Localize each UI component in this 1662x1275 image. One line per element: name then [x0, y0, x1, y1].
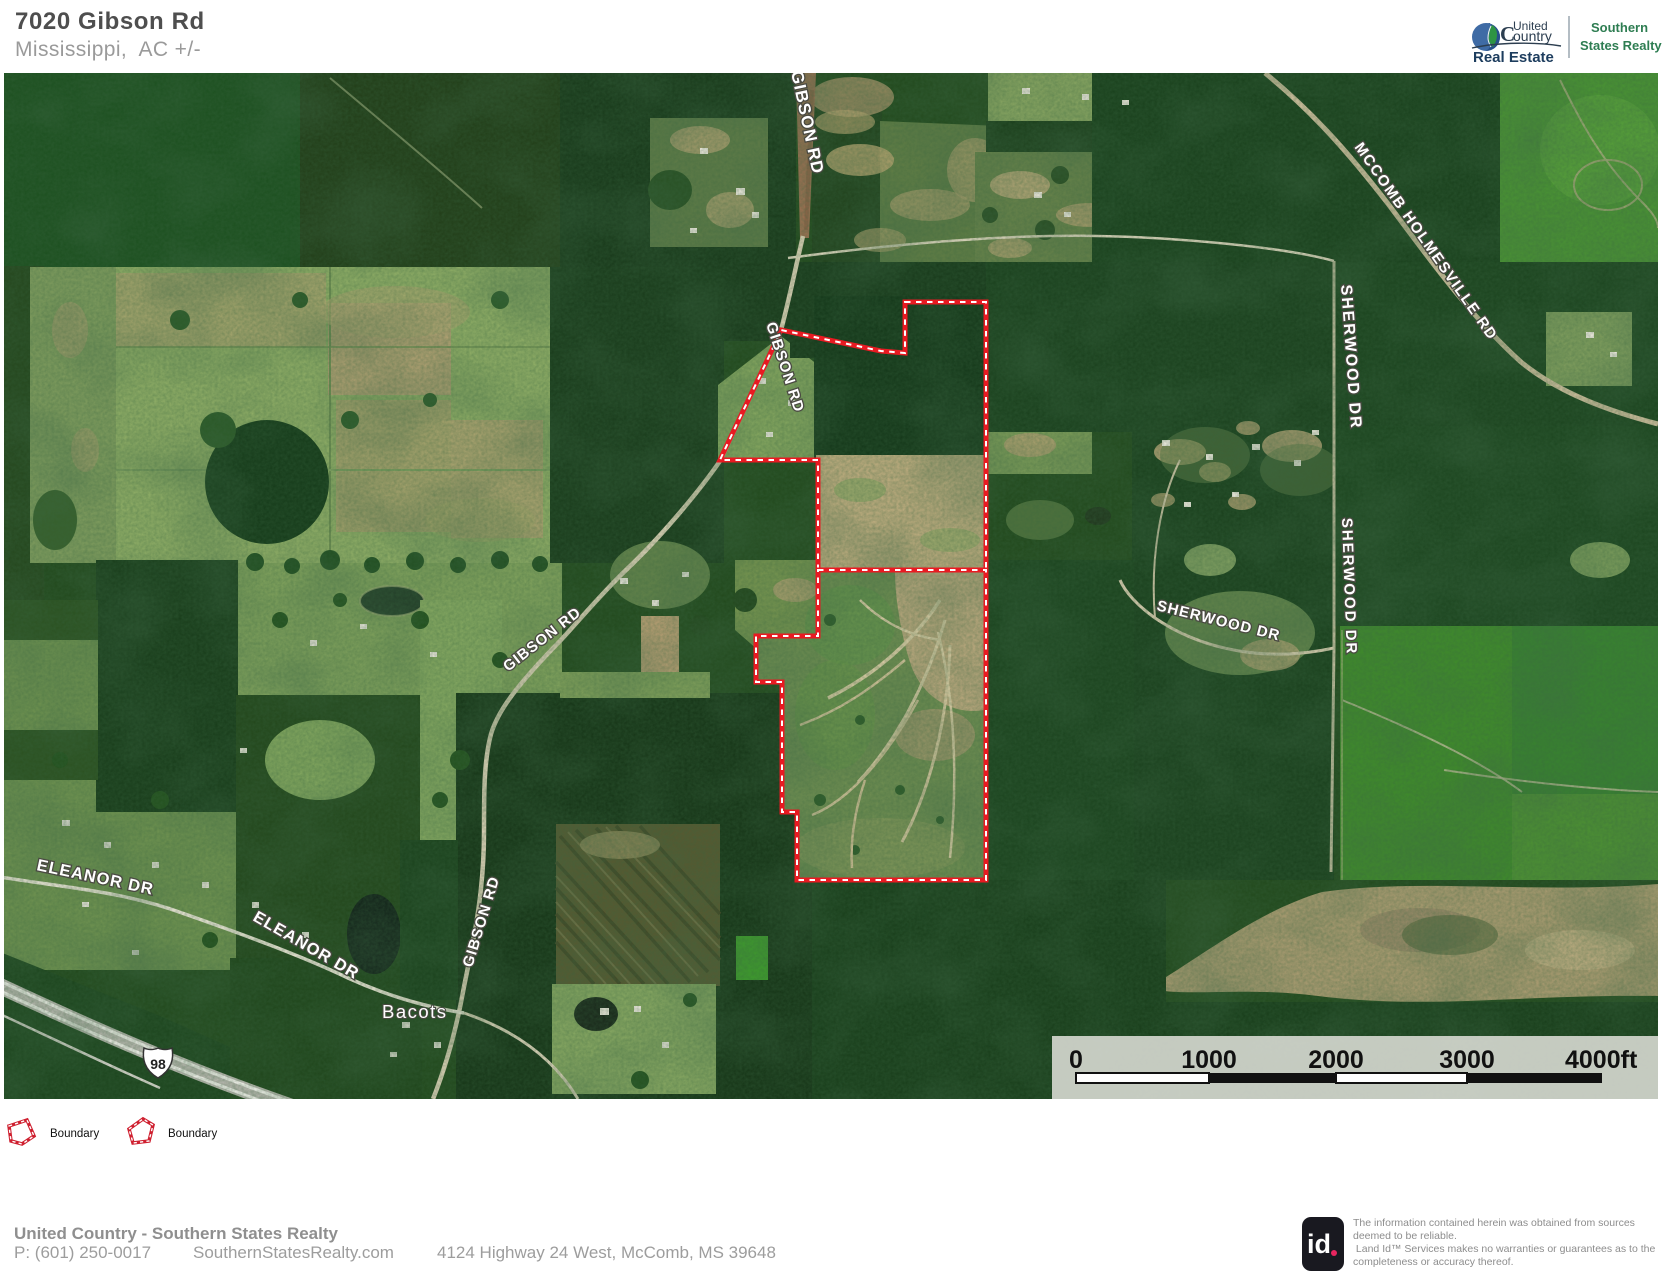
svg-text:Boundary: Boundary	[168, 1128, 217, 1140]
svg-text:1000: 1000	[1181, 1046, 1237, 1074]
svg-text:Bacots: Bacots	[382, 1001, 448, 1022]
svg-text:ountry: ountry	[1513, 28, 1552, 44]
svg-text:2000: 2000	[1308, 1046, 1364, 1074]
svg-text:Real Estate: Real Estate	[1473, 49, 1554, 66]
svg-text:98: 98	[150, 1056, 166, 1072]
svg-text:Southern: Southern	[1591, 20, 1648, 35]
svg-text:0: 0	[1069, 1046, 1083, 1074]
svg-text:States Realty: States Realty	[1580, 38, 1662, 53]
svg-text:Boundary: Boundary	[50, 1128, 99, 1140]
svg-text:3000: 3000	[1439, 1046, 1495, 1074]
svg-text:4000ft: 4000ft	[1565, 1046, 1638, 1074]
